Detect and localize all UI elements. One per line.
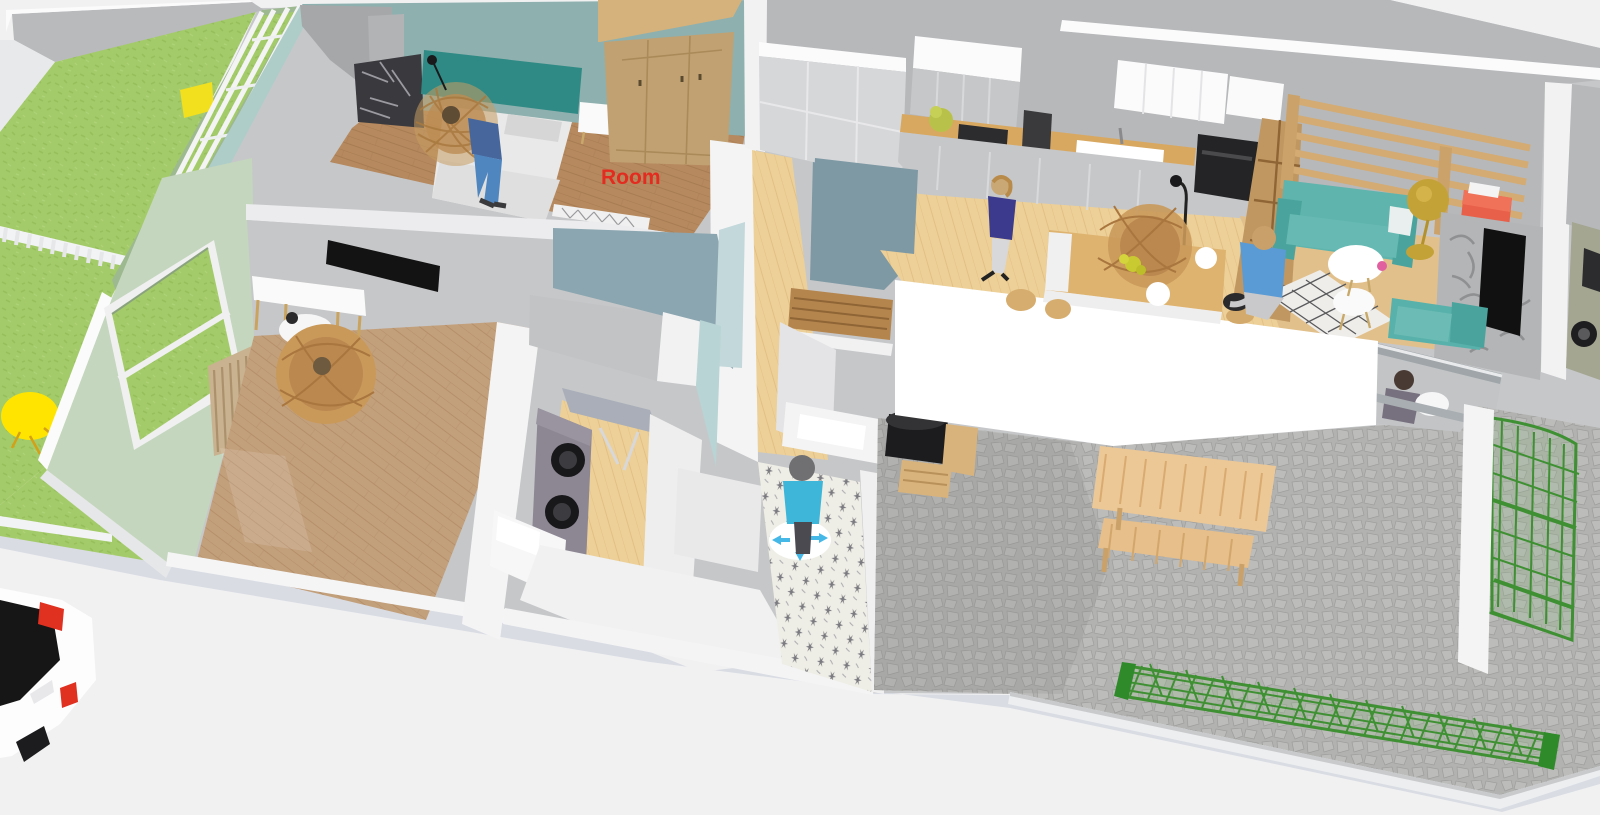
svg-text:Room: Room [601,166,661,189]
